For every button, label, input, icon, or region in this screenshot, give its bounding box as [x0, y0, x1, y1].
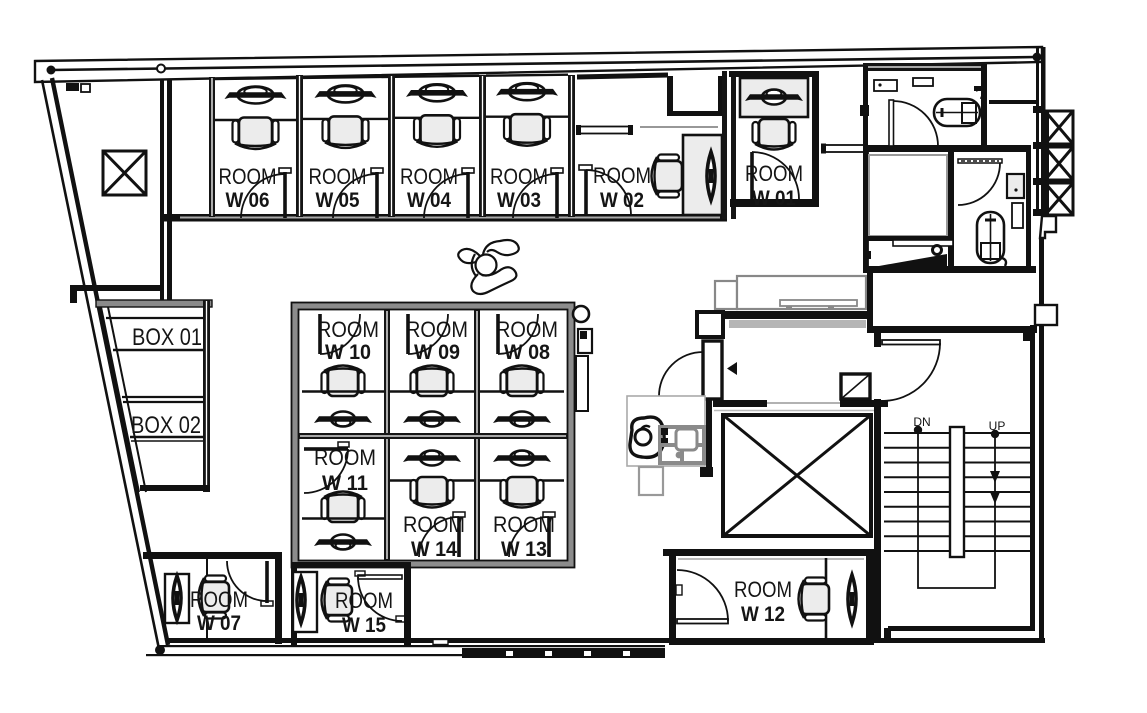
svg-text:W 02: W 02	[600, 189, 644, 212]
svg-text:ROOM: ROOM	[490, 164, 548, 189]
svg-text:W 12: W 12	[741, 603, 785, 626]
svg-text:ROOM: ROOM	[317, 317, 379, 342]
svg-text:W 05: W 05	[316, 189, 360, 212]
svg-text:W 15: W 15	[342, 614, 386, 637]
svg-text:BOX 01: BOX 01	[132, 324, 202, 351]
svg-text:W 06: W 06	[226, 189, 270, 212]
svg-text:UP: UP	[989, 419, 1006, 433]
svg-text:W 14: W 14	[411, 538, 457, 561]
svg-text:W 03: W 03	[497, 189, 541, 212]
svg-text:ROOM: ROOM	[493, 512, 555, 537]
svg-text:ROOM: ROOM	[309, 164, 367, 189]
svg-text:DN: DN	[913, 415, 930, 429]
svg-text:ROOM: ROOM	[406, 317, 468, 342]
svg-text:W 13: W 13	[501, 538, 547, 561]
svg-text:W 01: W 01	[752, 187, 796, 210]
svg-text:W 07: W 07	[197, 612, 241, 635]
svg-text:BOX 02: BOX 02	[131, 412, 201, 439]
svg-text:W 04: W 04	[407, 189, 451, 212]
svg-text:ROOM: ROOM	[403, 512, 465, 537]
svg-text:ROOM: ROOM	[400, 164, 458, 189]
svg-text:ROOM: ROOM	[496, 317, 558, 342]
svg-text:ROOM: ROOM	[734, 577, 792, 602]
svg-text:ROOM: ROOM	[593, 163, 651, 188]
